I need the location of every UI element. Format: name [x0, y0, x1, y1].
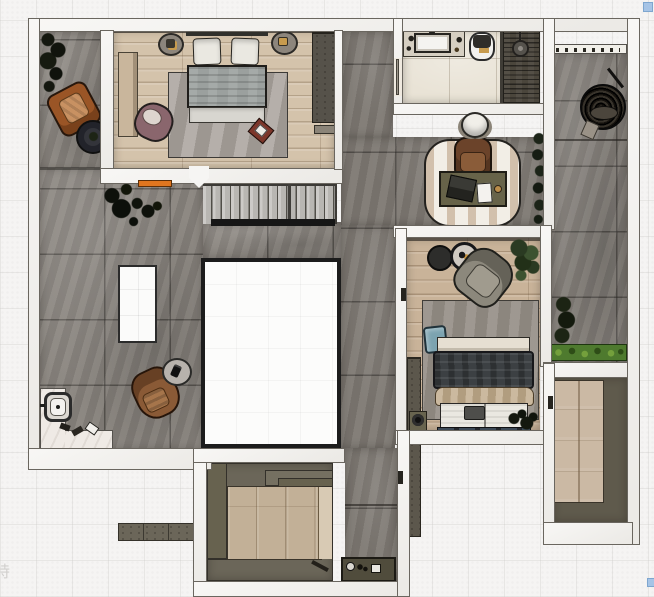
floor-hall-upper: [343, 31, 393, 137]
floor-plan-canvas: 特: [0, 0, 654, 597]
kitchen-counter-left[interactable]: [207, 463, 227, 560]
notepad[interactable]: [476, 183, 492, 204]
floor-corridor: [341, 225, 395, 448]
floor-joint-line: [40, 167, 102, 170]
nightstand-right-item: [278, 37, 288, 46]
selection-handle-bottom[interactable]: [647, 578, 654, 587]
wall-left: [28, 18, 40, 470]
bed1-pillow-right: [231, 38, 260, 66]
wall-mid-east: [543, 18, 555, 230]
wall-bedroom2-west: [395, 228, 407, 445]
wall-closet-west: [543, 363, 555, 540]
wall-bedroom1-west: [100, 30, 114, 184]
wall-bedroom2-south: [395, 430, 550, 445]
bathroom-door-leaf[interactable]: [396, 59, 399, 95]
wall-balcony-south: [543, 362, 633, 378]
console-kettle: [346, 562, 355, 571]
wall-bedroom2-east: [540, 225, 552, 367]
console-items: [357, 563, 369, 573]
bed1-foot-throw: [189, 107, 265, 123]
wall-right-outer: [627, 18, 640, 545]
wall-bedroom2-north: [393, 225, 550, 238]
shoe-mat[interactable]: [118, 523, 194, 541]
corridor-grout-line: [345, 504, 397, 506]
floor-stair-landing: [203, 222, 341, 258]
corridor-door-hinge: [398, 471, 403, 484]
island-counter[interactable]: [118, 265, 157, 343]
wall-bedroom1-east: [334, 30, 343, 170]
closet-wood-floor: [553, 380, 604, 503]
closet-door-hinge: [548, 396, 553, 409]
bedroom2-speaker: [412, 414, 424, 426]
wall-bedroom1-south: [100, 168, 343, 184]
kitchen-wood-floor: [227, 486, 322, 560]
bedroom2-door-hinge: [401, 288, 406, 301]
bed2-duvet[interactable]: [433, 351, 534, 389]
balcony-window-ledge: [552, 44, 627, 54]
console-machine: [371, 564, 381, 573]
vanity-sink[interactable]: [414, 33, 451, 53]
pedestal-basin[interactable]: [461, 112, 489, 138]
courtyard-void[interactable]: [201, 258, 341, 448]
bedroom1-bench[interactable]: [314, 125, 336, 134]
bed1-duvet[interactable]: [187, 65, 267, 108]
wall-corridor-east: [397, 430, 410, 597]
dry-tree-plant[interactable]: [94, 180, 166, 232]
staircase[interactable]: [203, 184, 337, 224]
desk-chair-seat: [460, 152, 486, 172]
watermark-text: 特: [0, 558, 10, 582]
selection-handle-top[interactable]: [643, 2, 653, 12]
staircase-stringer: [211, 219, 335, 226]
balcony-shrub-2[interactable]: [578, 288, 626, 346]
tub-drain-dot: [56, 405, 60, 409]
bedroom2-corner-plant[interactable]: [505, 236, 545, 284]
round-table-plant: [88, 131, 99, 142]
staircase-rail-post: [288, 184, 291, 224]
wall-bottom-left: [28, 448, 212, 470]
nightstand-left-item: [166, 39, 175, 48]
balcony-planter-row[interactable]: [550, 344, 627, 361]
wall-kitchen-west: [193, 448, 207, 596]
egg-chair-seat: [590, 106, 618, 120]
balcony-shrub-1[interactable]: [550, 294, 580, 346]
balcony-grout-line: [552, 139, 627, 141]
desk-cup: [494, 185, 502, 193]
shower-head[interactable]: [512, 40, 529, 57]
kitchen-wood-light-strip: [318, 487, 332, 559]
bed2-cushion: [464, 406, 485, 420]
toilet-seat: [473, 35, 491, 48]
orange-shelf[interactable]: [138, 180, 172, 187]
wall-kitchen-south: [193, 581, 410, 597]
bed1-pillow-left: [193, 38, 222, 66]
wall-kitchen-north: [193, 448, 345, 463]
wall-closet-south: [543, 522, 633, 545]
